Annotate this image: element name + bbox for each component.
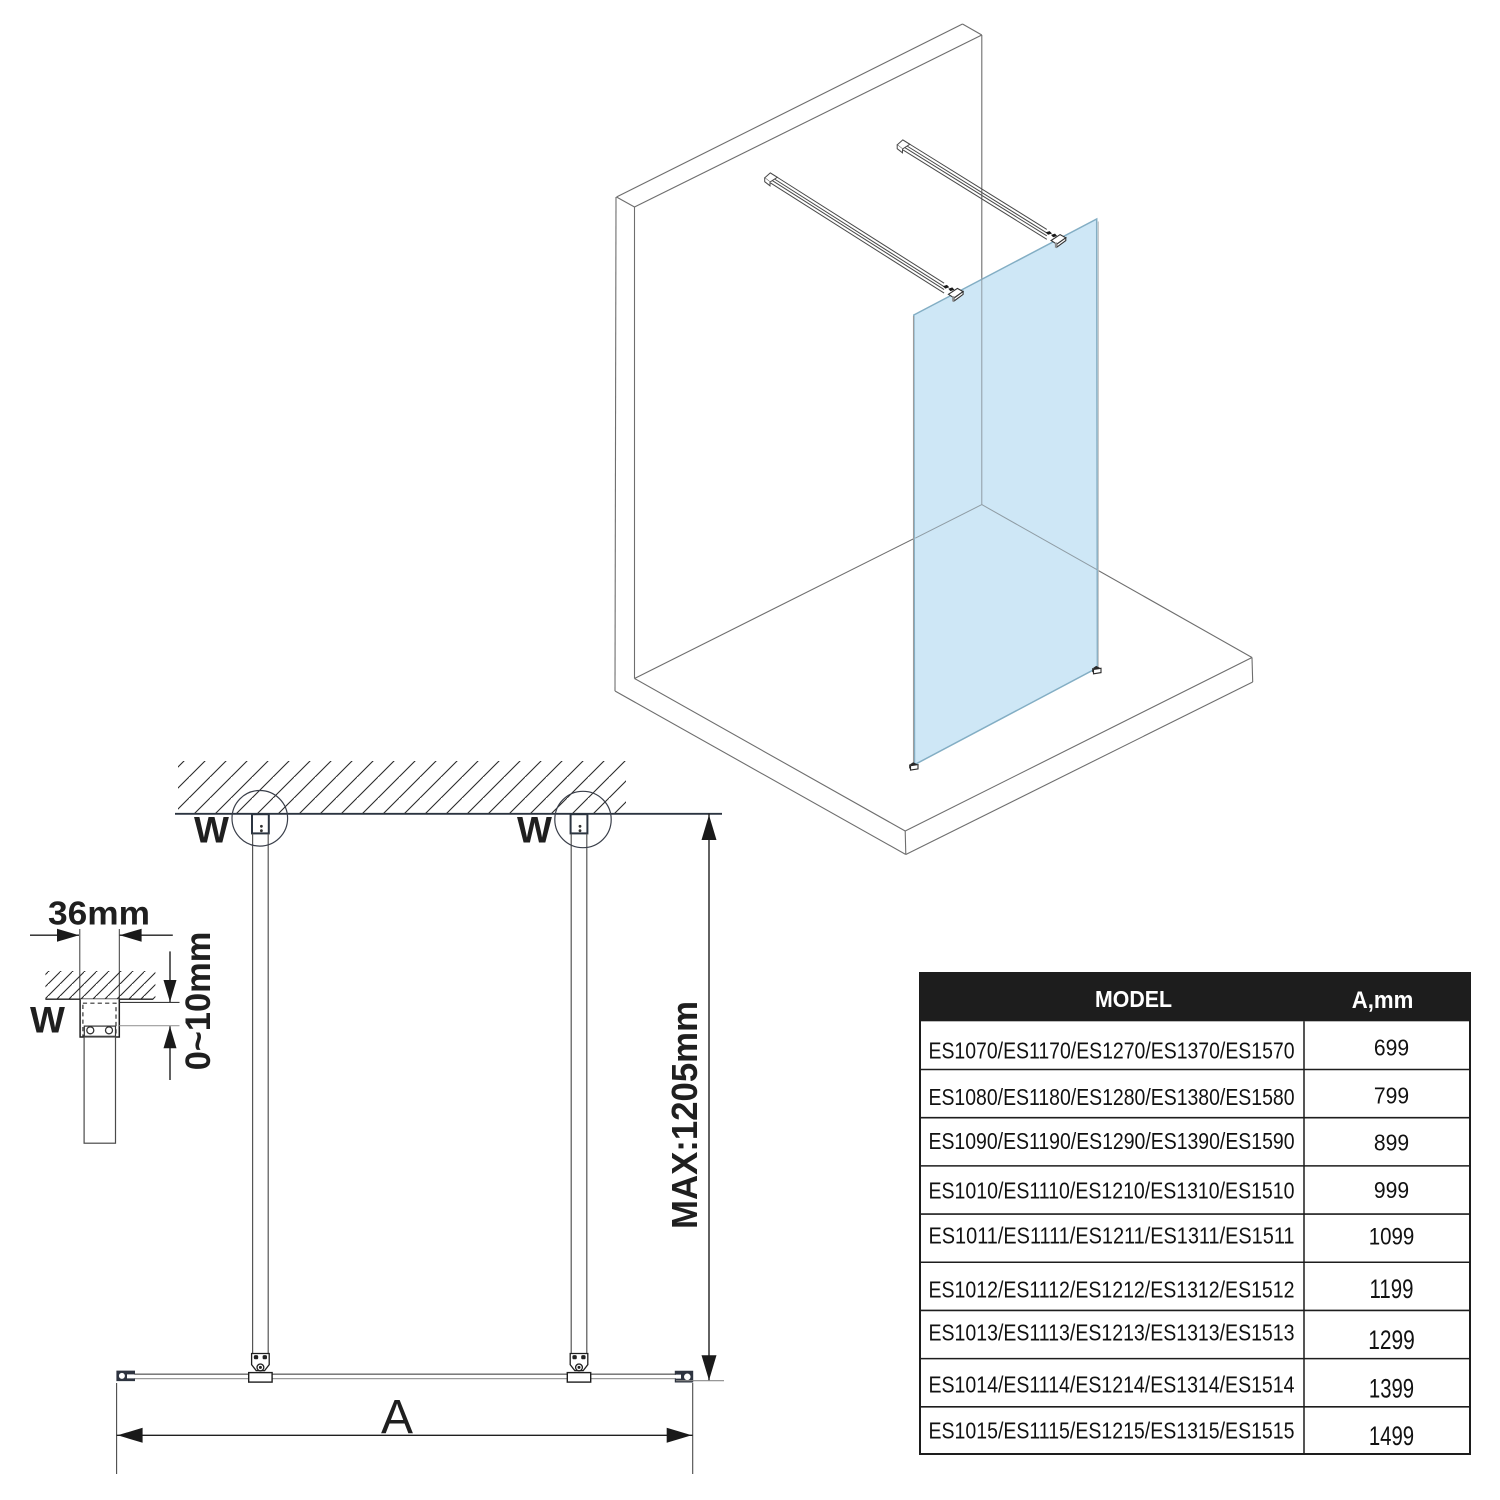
svg-text:W: W bbox=[517, 810, 552, 851]
svg-text:699: 699 bbox=[1374, 1034, 1409, 1060]
svg-text:ES1014/ES1114/ES1214/ES1314/ES: ES1014/ES1114/ES1214/ES1314/ES1514 bbox=[929, 1372, 1295, 1398]
svg-text:A: A bbox=[381, 1391, 413, 1444]
svg-text:0~10mm: 0~10mm bbox=[179, 932, 218, 1071]
svg-text:ES1090/ES1190/ES1290/ES1390/ES: ES1090/ES1190/ES1290/ES1390/ES1590 bbox=[929, 1128, 1295, 1154]
svg-text:1399: 1399 bbox=[1369, 1373, 1414, 1403]
svg-text:899: 899 bbox=[1374, 1130, 1409, 1156]
svg-text:799: 799 bbox=[1374, 1082, 1409, 1108]
svg-text:W: W bbox=[194, 810, 229, 851]
svg-text:MAX:1205mm: MAX:1205mm bbox=[664, 1001, 705, 1229]
svg-text:ES1080/ES1180/ES1280/ES1380/ES: ES1080/ES1180/ES1280/ES1380/ES1580 bbox=[929, 1084, 1295, 1110]
svg-text:ES1012/ES1112/ES1212/ES1312/ES: ES1012/ES1112/ES1212/ES1312/ES1512 bbox=[929, 1277, 1295, 1303]
svg-text:W: W bbox=[30, 1000, 65, 1041]
svg-text:MODEL: MODEL bbox=[1095, 986, 1172, 1012]
svg-text:ES1010/ES1110/ES1210/ES1310/ES: ES1010/ES1110/ES1210/ES1310/ES1510 bbox=[929, 1177, 1295, 1203]
svg-text:999: 999 bbox=[1374, 1177, 1409, 1203]
svg-text:1299: 1299 bbox=[1368, 1325, 1415, 1355]
svg-text:A,mm: A,mm bbox=[1352, 987, 1414, 1014]
svg-text:ES1013/ES1113/ES1213/ES1313/ES: ES1013/ES1113/ES1213/ES1313/ES1513 bbox=[929, 1320, 1295, 1346]
svg-text:ES1011/ES1111/ES1211/ES1311/ES: ES1011/ES1111/ES1211/ES1311/ES1511 bbox=[929, 1223, 1295, 1249]
svg-text:ES1015/ES1115/ES1215/ES1315/ES: ES1015/ES1115/ES1215/ES1315/ES1515 bbox=[929, 1417, 1295, 1443]
svg-text:36mm: 36mm bbox=[48, 895, 150, 932]
svg-text:1499: 1499 bbox=[1369, 1421, 1414, 1451]
svg-text:1099: 1099 bbox=[1369, 1223, 1415, 1250]
svg-text:ES1070/ES1170/ES1270/ES1370/ES: ES1070/ES1170/ES1270/ES1370/ES1570 bbox=[929, 1038, 1295, 1064]
svg-text:1199: 1199 bbox=[1370, 1274, 1414, 1304]
